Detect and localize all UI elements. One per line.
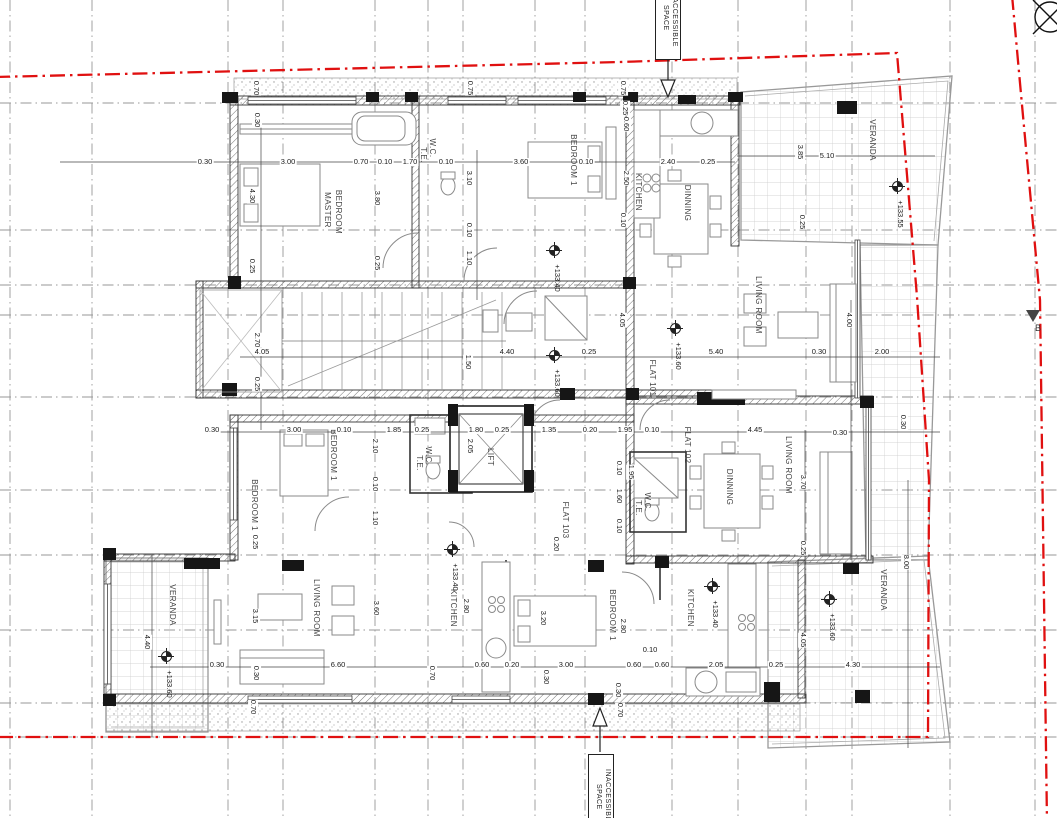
dimension-label: 0.30 bbox=[204, 426, 221, 434]
room-label: W.C. bbox=[423, 447, 433, 466]
dimension-label: 0.10 bbox=[618, 213, 628, 228]
room-label: BEDROOM bbox=[333, 190, 343, 234]
room-label: VERANDA bbox=[878, 569, 888, 610]
dimension-label: 0.75 bbox=[618, 81, 628, 96]
inaccessible-space-label-top: INACCESSIBLE SPACE bbox=[655, 0, 681, 60]
dimension-label: 0.10 bbox=[336, 426, 353, 434]
level-symbol bbox=[447, 544, 458, 555]
section-marker-label: B bbox=[1035, 323, 1041, 333]
level-label: +133.55 bbox=[895, 200, 905, 227]
dimension-label: 0.10 bbox=[644, 426, 661, 434]
room-label: T.E. bbox=[633, 500, 643, 515]
dimension-label: 3.80 bbox=[372, 191, 382, 206]
dimension-label: 0.25 bbox=[250, 535, 260, 550]
dimension-label: 0.25 bbox=[372, 256, 382, 271]
plan-linework bbox=[0, 0, 1057, 818]
dimension-label: 0.70 bbox=[427, 666, 437, 681]
dimension-label: 1.50 bbox=[463, 355, 473, 370]
room-label: KITCHEN bbox=[448, 589, 458, 627]
dimension-label: 0.75 bbox=[465, 81, 475, 96]
dimension-label: 2.50 bbox=[621, 171, 631, 186]
dimension-label: 0.30 bbox=[209, 661, 226, 669]
level-symbol bbox=[549, 245, 560, 256]
dimension-label: 4.45 bbox=[747, 426, 764, 434]
dimension-label: 0.25 bbox=[620, 101, 630, 116]
dimension-label: 0.30 bbox=[252, 113, 262, 128]
level-label: +133.40 bbox=[450, 563, 460, 590]
dimension-label: 2.40 bbox=[660, 158, 677, 166]
dimension-label: 0.25 bbox=[700, 158, 717, 166]
dimension-label: 0.30 bbox=[613, 683, 623, 698]
room-label: LIVING ROOM bbox=[783, 436, 793, 494]
dimension-label: 0.10 bbox=[377, 158, 394, 166]
dimension-label: 4.00 bbox=[844, 313, 854, 328]
dimension-label: 6.60 bbox=[330, 661, 347, 669]
dimension-label: 0.25 bbox=[797, 215, 807, 230]
room-label: VERANDA bbox=[167, 584, 177, 625]
dimension-label: 0.70 bbox=[251, 81, 261, 96]
level-symbol bbox=[892, 181, 903, 192]
level-symbol bbox=[161, 651, 172, 662]
dimension-label: 1.10 bbox=[370, 511, 380, 526]
dimension-label: 2.05 bbox=[708, 661, 725, 669]
dimension-label: 0.10 bbox=[438, 158, 455, 166]
dimension-label: 0.25 bbox=[247, 259, 257, 274]
dimension-label: 3.00 bbox=[280, 158, 297, 166]
dimension-label: 1.60 bbox=[614, 489, 624, 504]
dimension-label: 4.40 bbox=[142, 635, 152, 650]
dimension-label: 4.40 bbox=[499, 348, 516, 356]
dimension-label: 2.00 bbox=[874, 348, 891, 356]
level-symbol bbox=[824, 594, 835, 605]
dimension-label: 3.00 bbox=[558, 661, 575, 669]
level-label: +133.40 bbox=[552, 264, 562, 291]
level-label: +133.60 bbox=[164, 670, 174, 697]
dimension-label: 0.10 bbox=[614, 519, 624, 534]
dimension-label: 3.10 bbox=[464, 171, 474, 186]
room-label: W.C. bbox=[427, 139, 437, 158]
room-label: BEDROOM 1 bbox=[328, 429, 338, 481]
dimension-label: 1.85 bbox=[386, 426, 403, 434]
dimension-label: 0.25 bbox=[252, 377, 262, 392]
flat-label: FLAT 101 bbox=[647, 360, 657, 397]
flat-label: FLAT 102 bbox=[682, 427, 692, 464]
dimension-label: 0.30 bbox=[541, 670, 551, 685]
section-marker-icon bbox=[1026, 310, 1040, 322]
dimension-label: 8.00 bbox=[901, 555, 911, 570]
room-label: KITCHEN bbox=[685, 589, 695, 627]
dimension-label: 3.70 bbox=[798, 475, 808, 490]
dimension-label: 2.70 bbox=[252, 333, 262, 348]
dimension-label: 0.70 bbox=[248, 700, 258, 715]
dimension-label: 3.60 bbox=[513, 158, 530, 166]
dimension-label: 1.80 bbox=[468, 426, 485, 434]
level-label: +133.60 bbox=[827, 613, 837, 640]
dimension-label: 0.10 bbox=[642, 646, 659, 654]
dimension-label: 3.60 bbox=[371, 601, 381, 616]
dimension-label: 0.10 bbox=[370, 477, 380, 492]
dimension-label: 0.70 bbox=[353, 158, 370, 166]
dimension-label: 0.25 bbox=[798, 541, 808, 556]
dimension-label: 3.20 bbox=[538, 611, 548, 626]
dimension-label: 0.60 bbox=[621, 117, 631, 132]
floor-plan-drawing: B INACCESSIBLE SPACE INACCESSIBLE SPACE … bbox=[0, 0, 1057, 818]
dimension-label: 0.25 bbox=[768, 661, 785, 669]
dimension-label: 3.85 bbox=[795, 145, 805, 160]
dimension-label: 0.60 bbox=[474, 661, 491, 669]
dimension-label: 4.30 bbox=[247, 189, 257, 204]
level-label: +133.60 bbox=[673, 342, 683, 369]
room-label: VERANDA bbox=[867, 119, 877, 160]
dimension-label: 0.10 bbox=[464, 223, 474, 238]
room-label: W.C. bbox=[642, 493, 652, 512]
level-symbol bbox=[707, 581, 718, 592]
flat-label: FLAT 103 bbox=[560, 502, 570, 539]
dimension-label: 2.80 bbox=[618, 619, 628, 634]
room-label: T.E. bbox=[418, 147, 428, 162]
dimension-label: 2.10 bbox=[370, 439, 380, 454]
dimension-label: 0.30 bbox=[811, 348, 828, 356]
dimension-label: 1.10 bbox=[464, 251, 474, 266]
dimension-label: 0.20 bbox=[582, 426, 599, 434]
dimension-label: 0.20 bbox=[504, 661, 521, 669]
dimension-label: 1.35 bbox=[541, 426, 558, 434]
dimension-label: 0.30 bbox=[832, 429, 849, 437]
dimension-label: 3.15 bbox=[250, 609, 260, 624]
north-symbol bbox=[1033, 0, 1057, 34]
room-label: T.E. bbox=[414, 455, 424, 470]
dimension-label: 0.60 bbox=[626, 661, 643, 669]
room-label: DINNING bbox=[682, 185, 692, 222]
dimension-label: 0.25 bbox=[494, 426, 511, 434]
dimension-label: 0.60 bbox=[654, 661, 671, 669]
dimension-label: 0.30 bbox=[197, 158, 214, 166]
dimension-label: 0.25 bbox=[581, 348, 598, 356]
inaccessible-space-label-bottom: INACCESSIBLE SPACE bbox=[588, 754, 614, 818]
room-label: BEDROOM 1 bbox=[249, 479, 259, 531]
level-label: +133.60 bbox=[552, 369, 562, 396]
dimension-label: 2.80 bbox=[461, 599, 471, 614]
dimension-label: 2.05 bbox=[465, 439, 475, 454]
level-label: +133.40 bbox=[710, 600, 720, 627]
room-label: KITCHEN bbox=[633, 173, 643, 211]
dimension-label: 1.95 bbox=[626, 465, 636, 480]
dimension-label: 5.10 bbox=[819, 152, 836, 160]
dimension-label: 0.10 bbox=[578, 158, 595, 166]
dimension-label: 1.95 bbox=[617, 426, 634, 434]
dimension-label: 0.30 bbox=[898, 415, 908, 430]
dimension-label: 0.30 bbox=[251, 666, 261, 681]
level-symbol bbox=[670, 323, 681, 334]
dimension-label: 0.20 bbox=[551, 537, 561, 552]
room-label: DINNING bbox=[724, 469, 734, 506]
room-label: LIVING ROOM bbox=[311, 579, 321, 637]
dimension-label: 3.00 bbox=[286, 426, 303, 434]
dimension-label: 0.25 bbox=[414, 426, 431, 434]
room-label: BEDROOM 1 bbox=[568, 134, 578, 186]
room-label: LIFT bbox=[485, 448, 495, 466]
room-label: MASTER bbox=[322, 192, 332, 228]
dimension-label: 0.70 bbox=[615, 703, 625, 718]
staircase bbox=[200, 290, 506, 392]
room-label: LIVING ROOM bbox=[753, 276, 763, 334]
dimension-label: 1.70 bbox=[402, 158, 419, 166]
dimension-label: 4.30 bbox=[845, 661, 862, 669]
dimension-label: 4.05 bbox=[254, 348, 271, 356]
level-symbol bbox=[549, 350, 560, 361]
dimension-label: 4.05 bbox=[617, 313, 627, 328]
dimension-label: 5.40 bbox=[708, 348, 725, 356]
dimension-label: 0.10 bbox=[614, 461, 624, 476]
room-label: BEDROOM 1 bbox=[607, 589, 617, 641]
dimension-label: 4.05 bbox=[798, 633, 808, 648]
